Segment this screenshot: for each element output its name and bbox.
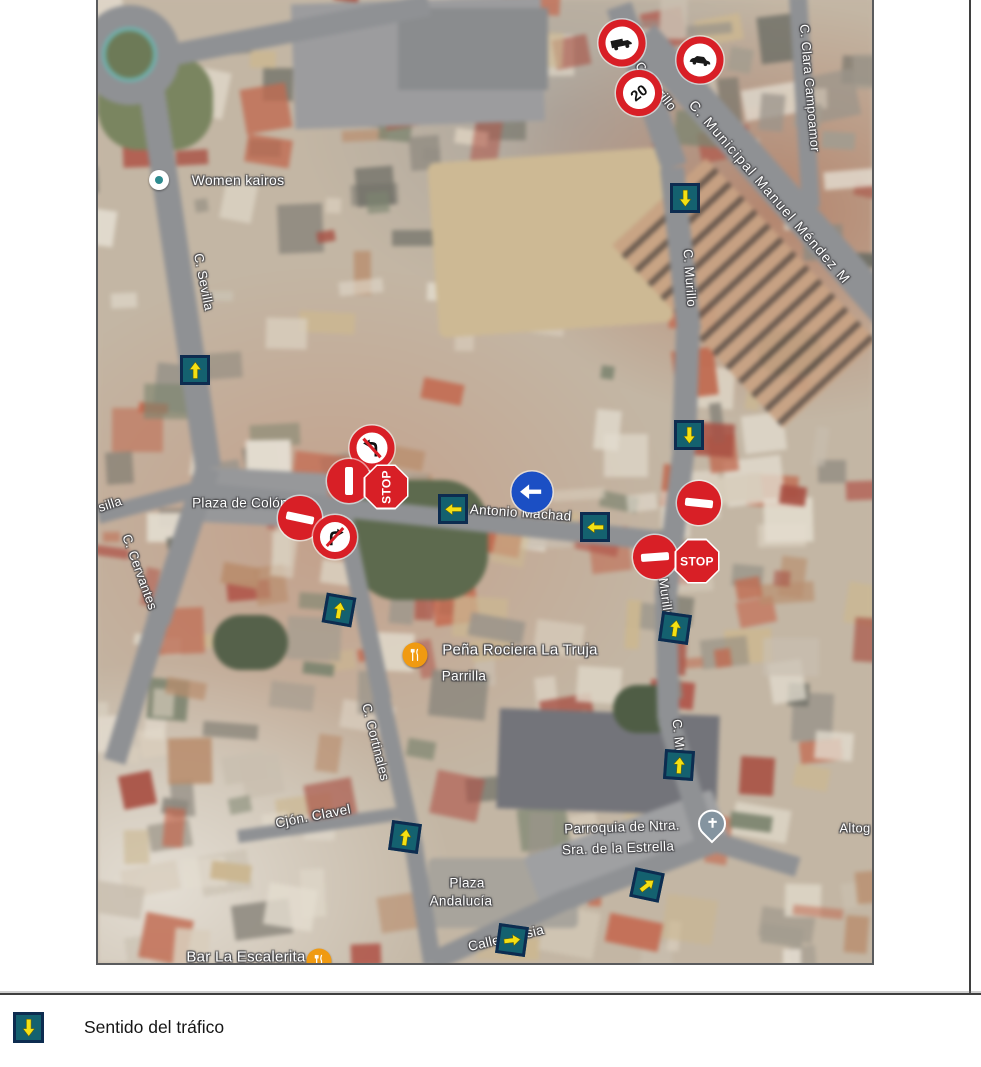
satellite-tile [843,915,869,954]
stop-sign: STOP [364,465,409,510]
terrain-patch [398,8,548,90]
satellite-tile [845,481,874,502]
traffic-direction-arrow-icon [674,420,704,450]
traffic-direction-arrow-icon [388,820,422,854]
traffic-direction-arrow-icon [663,749,695,781]
satellite-tile [824,168,874,190]
document-page: Women kairosC. SevillasillaPlaza de Coló… [0,0,981,1067]
satellite-tile [110,293,136,309]
page-frame-bottom [0,993,981,995]
satellite-tile [366,191,390,214]
satellite-tile [727,46,753,74]
satellite-tile [779,484,807,506]
satellite-tile [853,617,874,665]
satellite-tile [822,130,857,149]
satellite-tile [763,498,814,543]
down-arrow-icon [18,1017,40,1039]
satellite-tile [277,203,324,254]
satellite-tile [853,54,874,89]
place-label: Peña Rociera La Truja [442,642,598,659]
satellite-tile [600,365,615,380]
satellite-tile [266,318,308,350]
satellite-tile [773,570,790,586]
place-label: Plaza [449,876,484,891]
satellite-tile [661,893,718,945]
satellite-tile [239,753,286,800]
satellite-tile [763,638,820,677]
satellite-tile [814,730,855,761]
traffic-direction-arrow-icon [13,1012,44,1043]
satellite-tile [739,756,775,796]
satellite-tile [269,681,315,712]
place-label: Plaza de Colón [192,496,288,511]
terrain-patch [213,615,288,670]
traffic-direction-arrow-icon [438,494,468,524]
place-pin-icon [149,170,169,190]
satellite-tile [96,880,146,919]
satellite-tile [604,434,648,477]
satellite-tile [626,492,658,512]
traffic-direction-arrow-icon [322,593,357,628]
satellite-tile [194,198,209,213]
satellite-tile [758,93,785,132]
place-label: Women kairos [192,172,285,188]
satellite-tile [263,882,318,932]
place-label: Andalucía [430,894,493,909]
satellite-tile [168,738,213,785]
place-label: Altog [839,821,870,836]
traffic-direction-arrow-icon [629,867,665,903]
satellite-tile [783,949,802,965]
satellite-tile [118,770,157,810]
no-right-turn-sign [313,515,357,559]
page-frame-right [969,0,971,995]
satellite-tile [176,149,209,166]
legend-label: Sentido del tráfico [84,1017,224,1038]
satellite-tile [735,576,763,601]
satellite-tile [854,867,874,904]
restaurant-pin-icon [403,643,428,668]
place-label: Parrilla [442,669,486,684]
satellite-tile [326,197,342,212]
roundabout-center [102,27,157,82]
satellite-tile [105,451,134,485]
traffic-direction-arrow-icon [580,512,610,542]
satellite-tile [240,82,293,134]
traffic-direction-arrow-icon [658,611,692,645]
satellite-imagery [98,0,872,963]
satellite-tile [714,648,732,668]
stop-sign: STOP [675,539,720,584]
satellite-tile [249,51,275,68]
satellite-tile [123,830,149,864]
traffic-direction-arrow-icon [495,923,529,957]
map-figure: Women kairosC. SevillasillaPlaza de Coló… [96,0,874,965]
satellite-tile [96,702,108,717]
traffic-direction-arrow-icon [670,183,700,213]
satellite-tile [351,944,382,965]
satellite-tile [429,769,486,822]
satellite-tile [103,532,120,542]
legend: Sentido del tráfico [0,1005,981,1065]
traffic-direction-arrow-icon [180,355,210,385]
satellite-tile [162,807,185,848]
place-label: Bar La Escalerita [186,949,305,966]
mandatory-left-sign [512,472,553,513]
satellite-tile [659,0,688,39]
